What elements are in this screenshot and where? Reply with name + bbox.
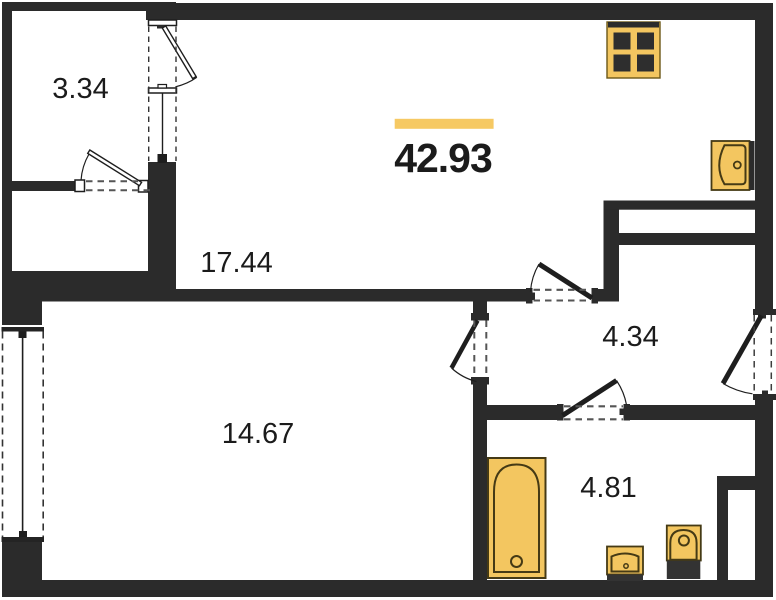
- svg-text:4.34: 4.34: [602, 321, 658, 353]
- svg-text:14.67: 14.67: [222, 418, 295, 450]
- svg-text:42.93: 42.93: [394, 135, 492, 181]
- svg-text:17.44: 17.44: [200, 247, 273, 279]
- svg-text:4.81: 4.81: [580, 472, 636, 504]
- svg-text:3.34: 3.34: [52, 73, 108, 105]
